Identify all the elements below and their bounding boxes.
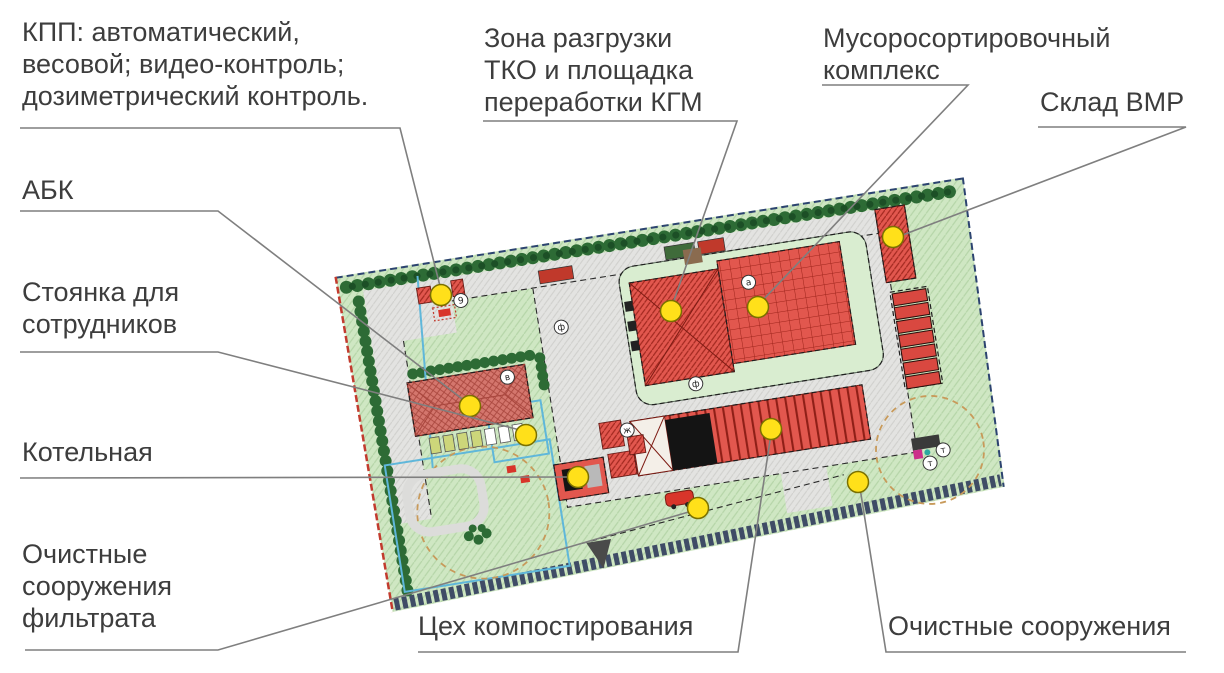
callout-marker-abk — [460, 396, 481, 417]
callout-marker-zona-razgruzki — [661, 301, 682, 322]
plan-rotated-frame: 9 ф ф ж т т а в — [336, 177, 1016, 612]
leader-line-ochistnye-sooruzheniya — [860, 488, 1186, 652]
svg-text:ж: ж — [623, 425, 633, 436]
callout-marker-ochistnye-filtrata — [688, 498, 709, 519]
small-structure — [506, 465, 516, 473]
site-plan: 9 ф ф ж т т а в — [0, 0, 1224, 673]
callout-marker-ochistnye-sooruzheniya — [848, 472, 869, 493]
leader-line-kotelnaya — [20, 477, 571, 478]
hedge-abk-side — [540, 358, 544, 386]
callout-marker-sklad-vmr — [883, 227, 904, 248]
callout-marker-stoyanka — [516, 425, 537, 446]
leader-line-kpp — [20, 128, 441, 290]
screenshot-root: 9 ф ф ж т т а в КПП: автоматический,весо… — [0, 0, 1224, 673]
building-zona-razgruzki — [629, 269, 734, 386]
callout-marker-musorosortirovochny-kompleks — [748, 297, 769, 318]
callout-marker-kpp — [431, 285, 452, 306]
small-structure — [520, 475, 530, 483]
callout-marker-ceh-kompostirovaniya — [761, 419, 782, 440]
callout-marker-kotelnaya — [568, 467, 589, 488]
